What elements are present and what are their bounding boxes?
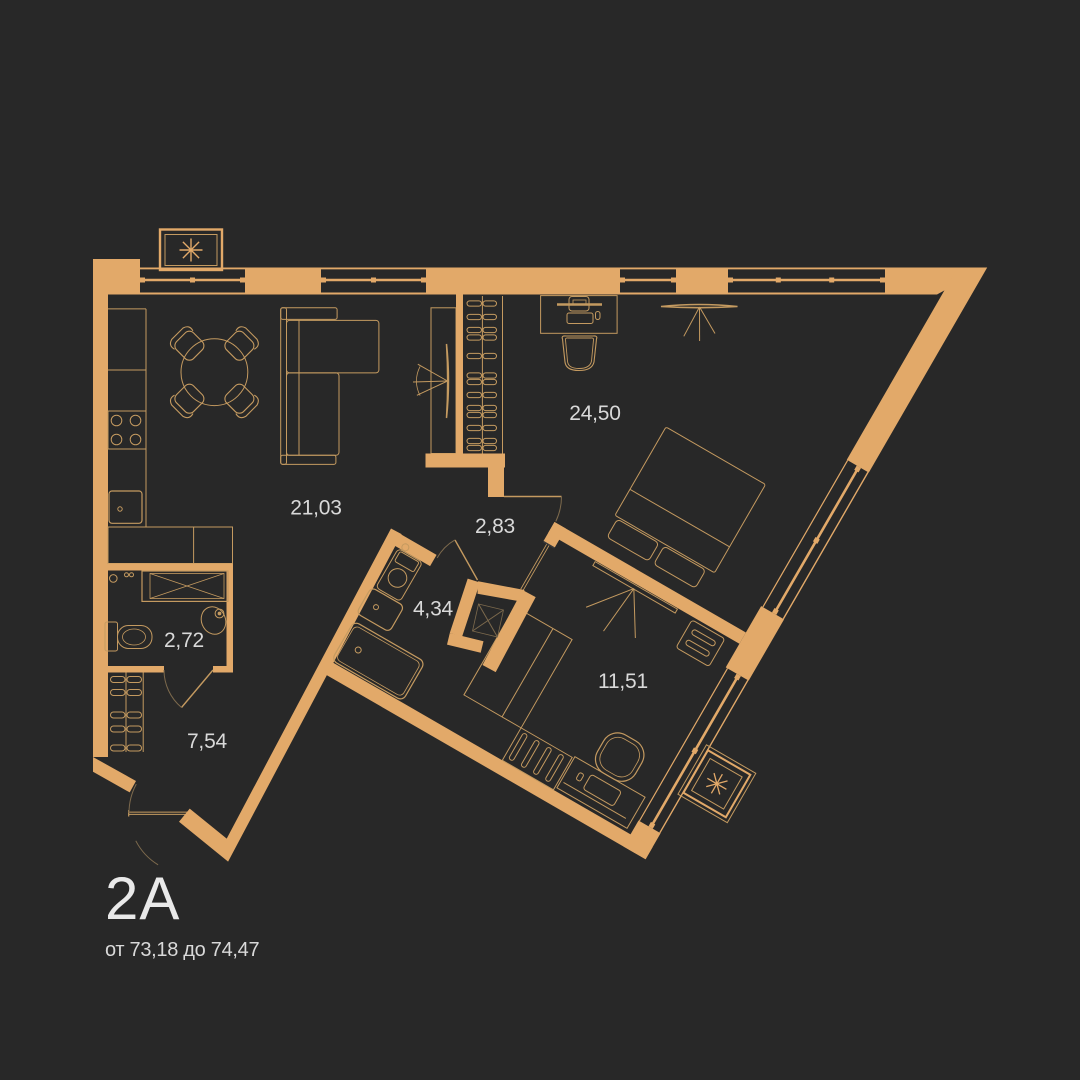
svg-text:11,51: 11,51	[598, 670, 648, 693]
svg-text:от 73,18 до 74,47: от 73,18 до 74,47	[105, 939, 259, 961]
svg-text:7,54: 7,54	[187, 730, 228, 753]
svg-text:2,83: 2,83	[475, 515, 515, 538]
svg-text:4,34: 4,34	[413, 598, 454, 621]
svg-text:2А: 2А	[105, 865, 180, 932]
svg-text:21,03: 21,03	[290, 497, 342, 520]
svg-text:24,50: 24,50	[569, 402, 621, 425]
svg-text:2,72: 2,72	[164, 629, 204, 652]
